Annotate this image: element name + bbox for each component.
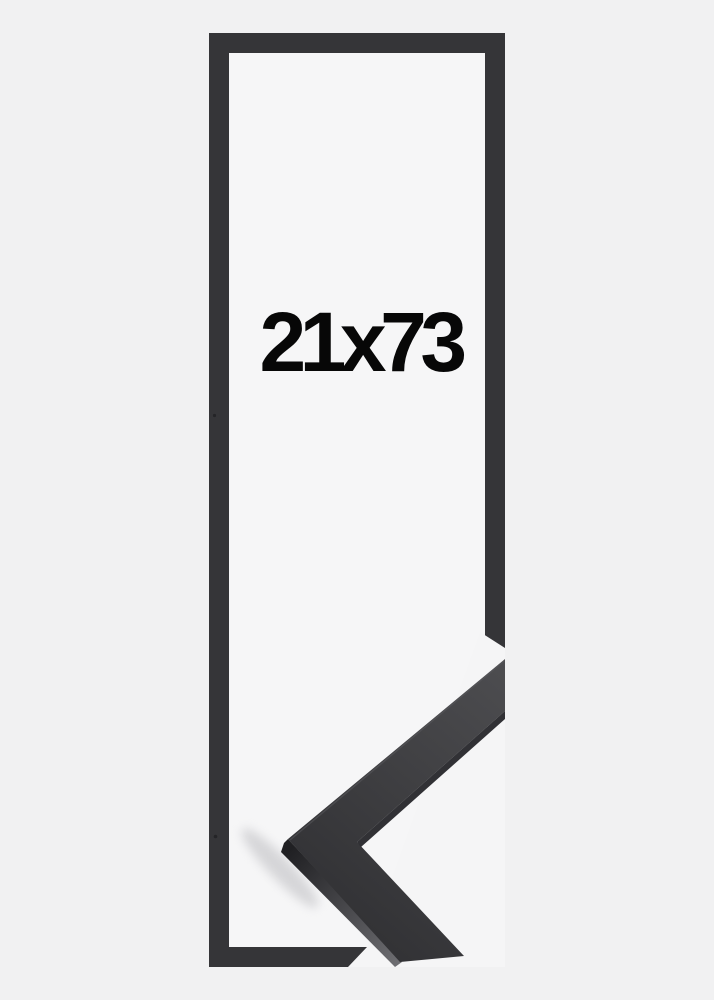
frame-size-label: 21x73 <box>259 295 464 389</box>
frame-preview-canvas: 21x73 <box>0 0 714 1000</box>
frame-outline-left-bar <box>209 33 229 967</box>
dust-speck <box>214 835 218 839</box>
dust-speck <box>213 414 216 417</box>
frame-outline-top-bar <box>209 33 505 53</box>
frame-product-image: 21x73 <box>0 0 714 1000</box>
